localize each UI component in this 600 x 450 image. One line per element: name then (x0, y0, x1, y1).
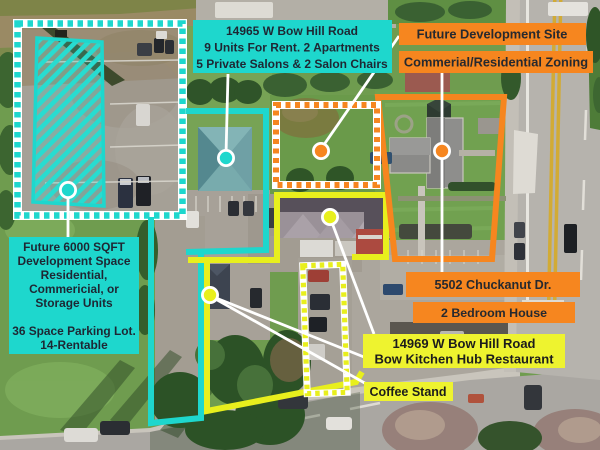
svg-text:9 Units For Rent. 2 Apartments: 9 Units For Rent. 2 Apartments (204, 41, 380, 55)
svg-text:14965 W Bow Hill Road: 14965 W Bow Hill Road (226, 24, 358, 38)
svg-text:36 Space Parking Lot.: 36 Space Parking Lot. (12, 324, 136, 338)
svg-text:5 Private Salons & 2 Salon Cha: 5 Private Salons & 2 Salon Chairs (196, 57, 388, 71)
svg-text:14969 W Bow Hill Road: 14969 W Bow Hill Road (392, 336, 535, 351)
svg-text:Coffee Stand: Coffee Stand (369, 385, 446, 399)
svg-text:Development Space: Development Space (17, 254, 130, 268)
svg-text:Future 6000 SQFT: Future 6000 SQFT (23, 240, 125, 254)
svg-text:14-Rentable: 14-Rentable (40, 338, 108, 352)
svg-text:5502 Chuckanut Dr.: 5502 Chuckanut Dr. (435, 278, 552, 292)
svg-text:Residential,: Residential, (41, 268, 108, 282)
svg-text:2 Bedroom House: 2 Bedroom House (441, 306, 547, 320)
svg-text:Commerial/Residential Zoning: Commerial/Residential Zoning (404, 55, 588, 70)
svg-text:Bow Kitchen Hub Restaurant: Bow Kitchen Hub Restaurant (374, 352, 554, 367)
svg-text:Commericial, or: Commericial, or (29, 282, 119, 296)
svg-text:Future Development Site: Future Development Site (417, 27, 568, 42)
svg-text:Storage Units: Storage Units (35, 296, 113, 310)
